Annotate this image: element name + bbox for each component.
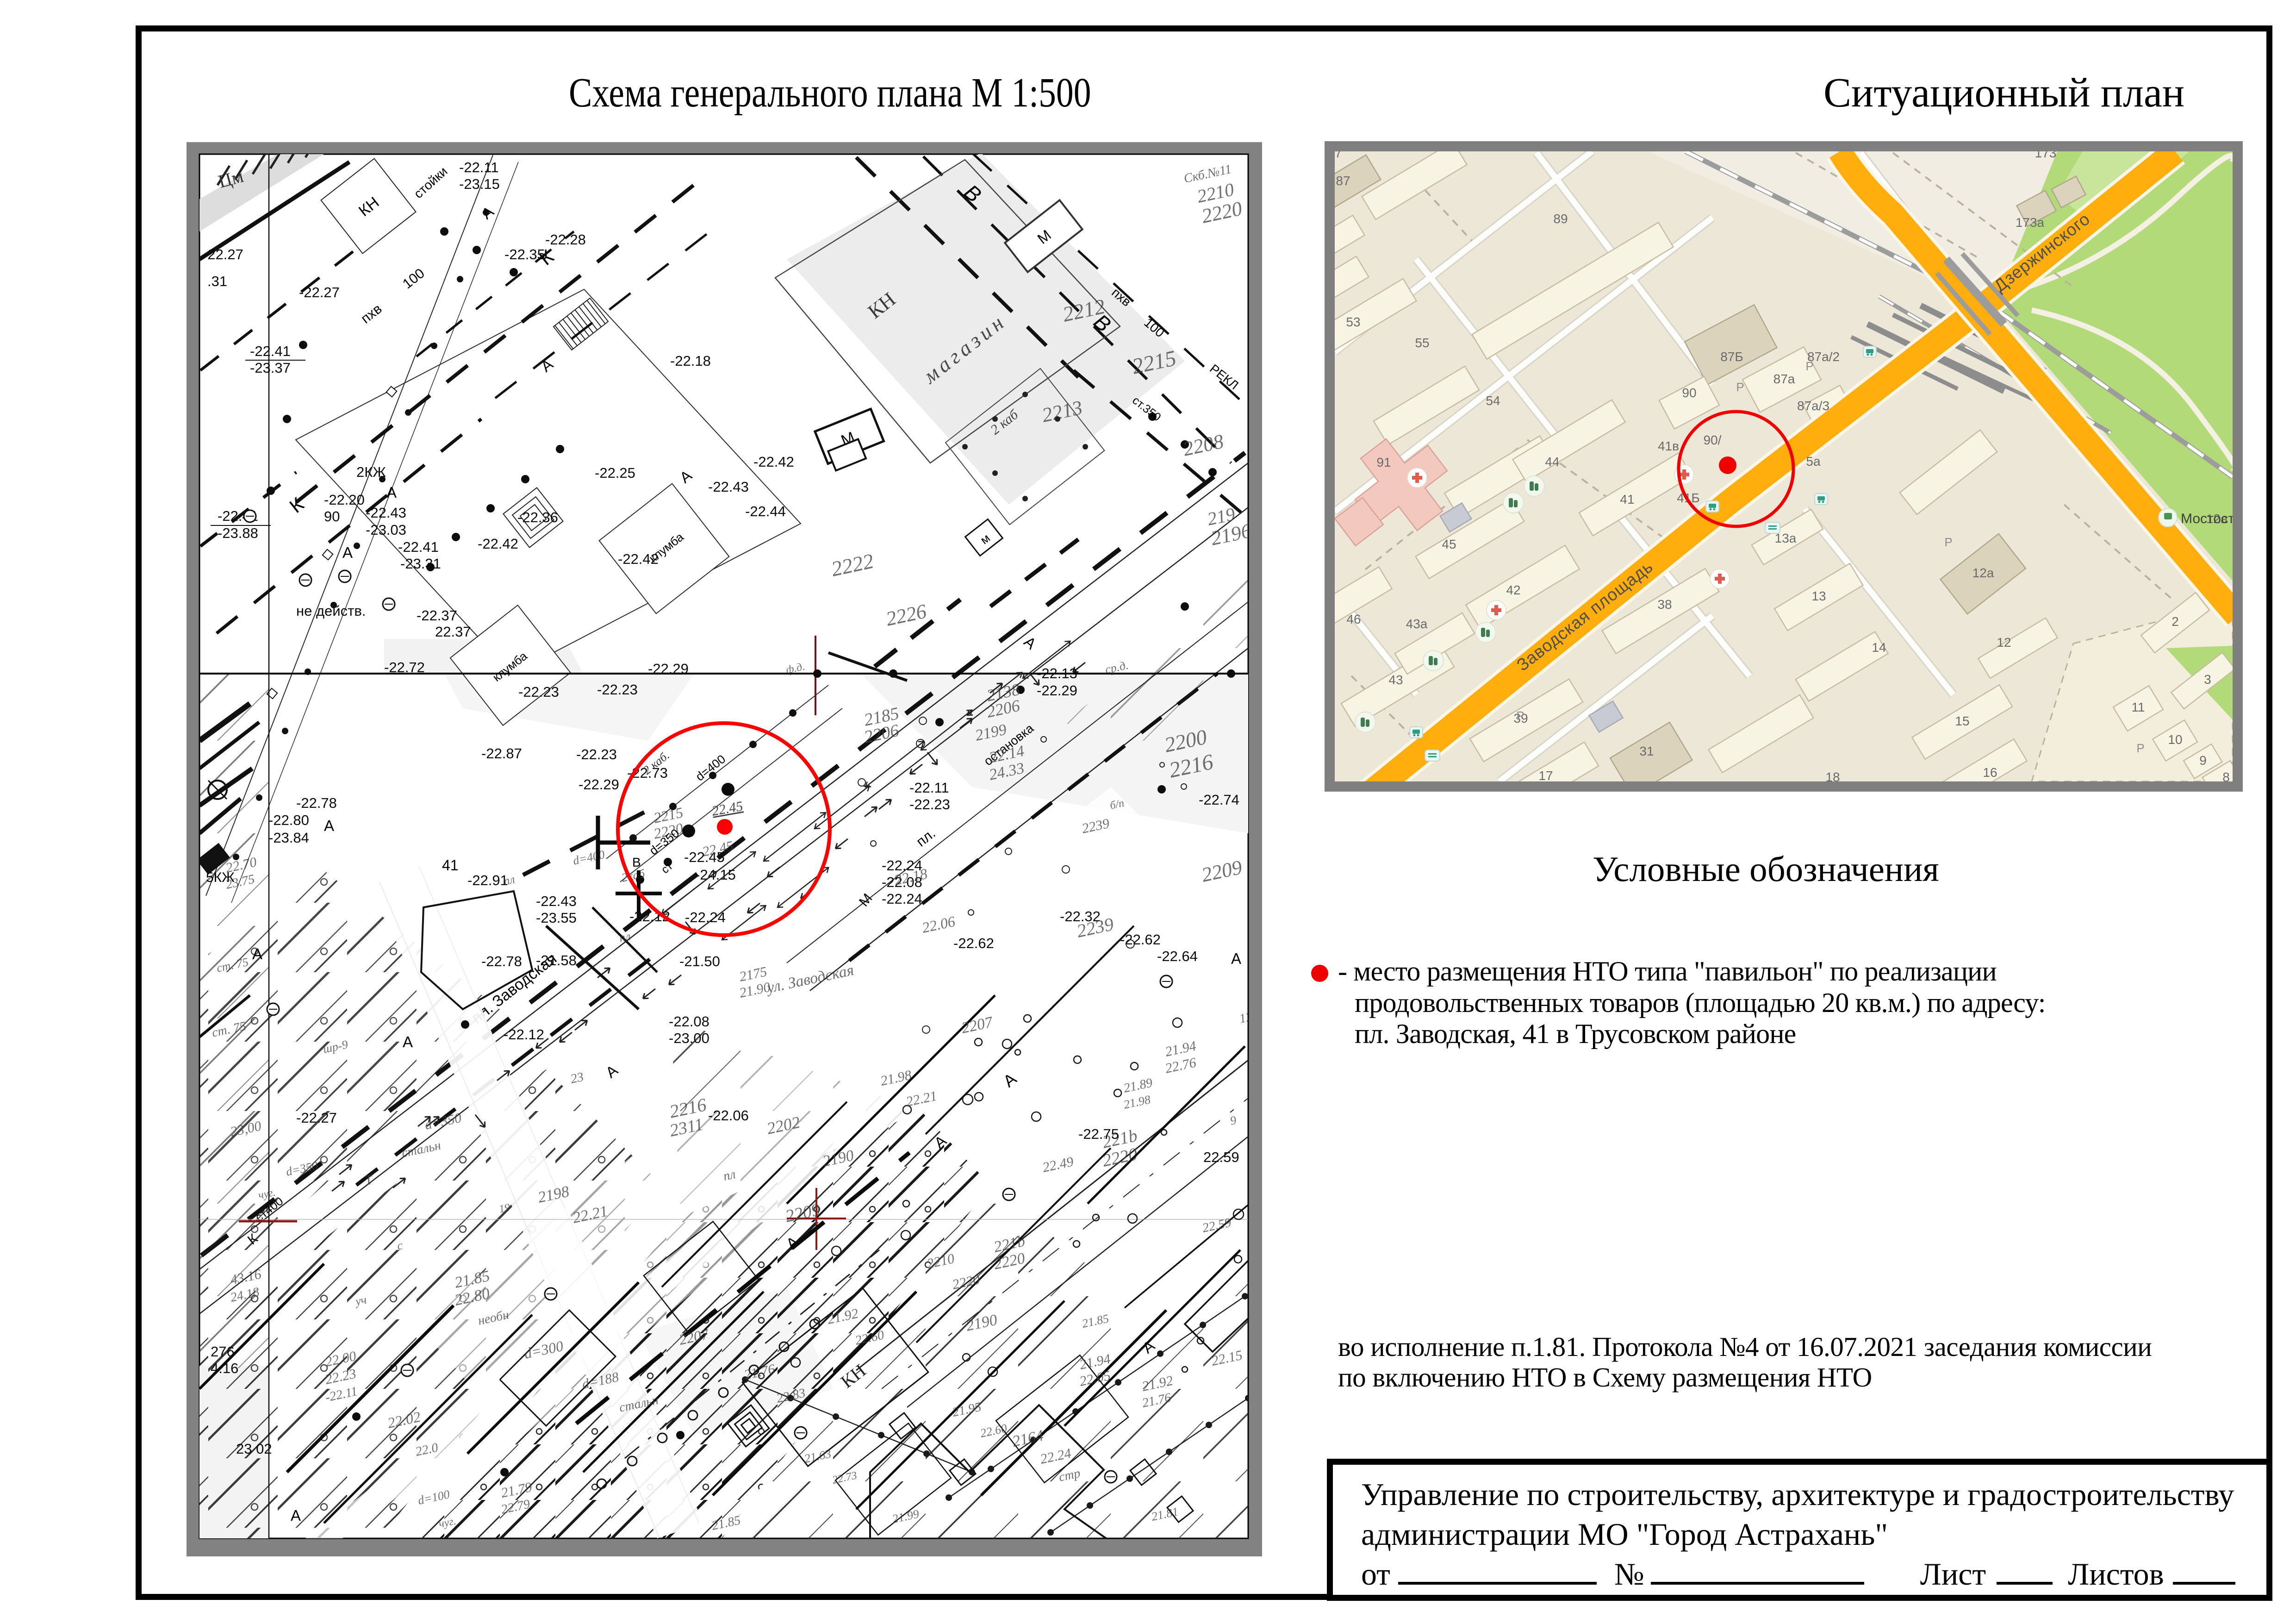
svg-text:.31: .31 xyxy=(207,273,227,289)
svg-text:16: 16 xyxy=(1983,765,1997,780)
svg-text:А: А xyxy=(1231,950,1241,967)
svg-text:-22.35: -22.35 xyxy=(504,246,545,262)
svg-text:-22.72: -22.72 xyxy=(384,659,425,675)
svg-text:-23.00: -23.00 xyxy=(669,1030,709,1046)
svg-text:-22.78: -22.78 xyxy=(481,953,522,969)
svg-text:276: 276 xyxy=(211,1343,235,1360)
svg-text:87Б: 87Б xyxy=(1720,350,1743,364)
svg-text:-22.78: -22.78 xyxy=(296,795,337,811)
svg-text:-22.41: -22.41 xyxy=(250,343,291,359)
svg-text:А: А xyxy=(291,1507,301,1524)
svg-text:А: А xyxy=(386,484,397,501)
svg-text:43: 43 xyxy=(1388,673,1403,687)
svg-text:44: 44 xyxy=(1545,455,1559,469)
svg-text:-22.27: -22.27 xyxy=(296,1110,337,1126)
svg-text:22.37: 22.37 xyxy=(435,624,471,640)
svg-text:4.16: 4.16 xyxy=(211,1360,238,1376)
svg-text:2КЖ: 2КЖ xyxy=(356,464,386,480)
svg-text:11: 11 xyxy=(2131,700,2145,714)
svg-text:-22.24: -22.24 xyxy=(882,891,922,907)
svg-text:2: 2 xyxy=(2172,614,2179,629)
svg-text:-22.29: -22.29 xyxy=(579,776,619,793)
svg-text:-22.08: -22.08 xyxy=(669,1013,709,1030)
svg-text:P: P xyxy=(1944,535,1952,549)
svg-text:12а: 12а xyxy=(1972,566,1994,580)
svg-text:22.59: 22.59 xyxy=(1203,1149,1239,1165)
svg-text:-22.42: -22.42 xyxy=(618,551,659,567)
svg-text:42: 42 xyxy=(1506,583,1520,597)
svg-text:-22.11: -22.11 xyxy=(909,780,949,796)
svg-text:12: 12 xyxy=(1997,635,2011,650)
svg-text:87: 87 xyxy=(1336,174,1350,188)
svg-text:-22.23: -22.23 xyxy=(597,681,638,698)
svg-text:-22.64: -22.64 xyxy=(1157,948,1198,964)
svg-text:15: 15 xyxy=(1955,714,1969,728)
svg-text:173а: 173а xyxy=(2016,215,2045,230)
svg-text:-22.43: -22.43 xyxy=(536,893,577,909)
svg-text:-22.41: -22.41 xyxy=(398,539,439,555)
svg-text:-22.29: -22.29 xyxy=(1037,682,1077,699)
svg-text:-22.13: -22.13 xyxy=(1037,665,1077,681)
svg-text:-22.27: -22.27 xyxy=(203,246,243,262)
svg-text:-23.15: -23.15 xyxy=(459,176,500,192)
svg-text:-22.12: -22.12 xyxy=(504,1026,544,1043)
svg-text:87а: 87а xyxy=(1773,372,1795,386)
svg-text:55: 55 xyxy=(1415,336,1429,350)
svg-text:90: 90 xyxy=(324,508,340,525)
svg-text:3: 3 xyxy=(2204,672,2211,687)
svg-text:P: P xyxy=(2136,741,2144,755)
svg-text:P: P xyxy=(1516,709,1524,723)
svg-text:41: 41 xyxy=(442,857,459,874)
svg-text:-23.31: -23.31 xyxy=(400,556,441,572)
svg-text:-22.36: -22.36 xyxy=(517,509,558,525)
svg-text:А: А xyxy=(324,817,334,834)
svg-text:-22.28: -22.28 xyxy=(545,231,586,248)
svg-text:54: 54 xyxy=(1486,394,1500,408)
svg-text:90/: 90/ xyxy=(1704,433,1722,447)
svg-text:А: А xyxy=(252,945,262,962)
svg-text:-22.62: -22.62 xyxy=(1120,931,1161,948)
svg-text:-23.88: -23.88 xyxy=(218,525,258,541)
svg-text:-21.58: -21.58 xyxy=(536,952,577,968)
svg-text:не действ.: не действ. xyxy=(296,603,366,619)
svg-text:53: 53 xyxy=(1346,315,1360,329)
svg-text:-22.43: -22.43 xyxy=(366,505,406,521)
svg-text:-22.29: -22.29 xyxy=(648,661,689,677)
svg-text:14: 14 xyxy=(1872,640,1886,655)
svg-text:5а: 5а xyxy=(1806,454,1821,468)
svg-text:9: 9 xyxy=(2199,753,2207,768)
svg-text:-22.27: -22.27 xyxy=(299,284,340,300)
svg-text:87а/3: 87а/3 xyxy=(1797,399,1829,413)
svg-text:-22.74: -22.74 xyxy=(1199,792,1239,808)
svg-text:-23.55: -23.55 xyxy=(536,910,577,926)
svg-text:17: 17 xyxy=(1538,768,1553,783)
svg-text:-23.03: -23.03 xyxy=(366,522,406,538)
svg-text:-22.06: -22.06 xyxy=(708,1107,749,1124)
svg-text:43а: 43а xyxy=(1406,617,1428,631)
svg-text:46: 46 xyxy=(1346,612,1361,626)
svg-text:31: 31 xyxy=(1639,744,1654,758)
svg-text:В: В xyxy=(632,855,641,869)
svg-text:45: 45 xyxy=(1442,537,1456,551)
svg-text:-22.80: -22.80 xyxy=(268,812,309,828)
svg-text:-22.20: -22.20 xyxy=(324,492,365,508)
svg-text:-22.11: -22.11 xyxy=(459,159,499,175)
svg-text:38: 38 xyxy=(1657,597,1672,612)
svg-text:-22.62: -22.62 xyxy=(953,935,994,951)
svg-text:-22.23: -22.23 xyxy=(518,684,559,700)
svg-text:А: А xyxy=(403,1033,413,1050)
svg-text:-22.75: -22.75 xyxy=(1078,1126,1119,1142)
svg-text:-22.37: -22.37 xyxy=(417,607,457,624)
svg-text:89: 89 xyxy=(1553,212,1568,226)
svg-text:-23.84: -23.84 xyxy=(268,830,309,846)
svg-text:P: P xyxy=(1736,380,1744,394)
svg-text:-21.50: -21.50 xyxy=(679,953,720,969)
svg-text:-22.25: -22.25 xyxy=(595,465,635,481)
svg-text:-22.42: -22.42 xyxy=(753,454,794,470)
svg-text:-22.43: -22.43 xyxy=(708,479,749,495)
svg-text:41: 41 xyxy=(1620,492,1634,506)
svg-text:41в: 41в xyxy=(1658,439,1679,453)
svg-text:90: 90 xyxy=(1682,386,1696,400)
svg-text:-22.44: -22.44 xyxy=(745,503,786,519)
svg-text:-23.37: -23.37 xyxy=(250,360,291,376)
svg-text:-22.23: -22.23 xyxy=(909,796,950,812)
svg-text:-22.23: -22.23 xyxy=(576,746,617,762)
svg-text:-22.42: -22.42 xyxy=(478,536,518,552)
svg-text:23 02: 23 02 xyxy=(236,1441,272,1457)
svg-text:-22.24: -22.24 xyxy=(685,909,726,925)
svg-text:-22.18: -22.18 xyxy=(670,353,711,369)
svg-text:10: 10 xyxy=(2168,732,2182,747)
svg-text:13: 13 xyxy=(1811,589,1826,603)
svg-text:P: P xyxy=(1805,359,1813,373)
svg-text:91: 91 xyxy=(1376,455,1391,469)
svg-text:А: А xyxy=(342,544,353,561)
svg-text:-22.87: -22.87 xyxy=(481,745,522,762)
